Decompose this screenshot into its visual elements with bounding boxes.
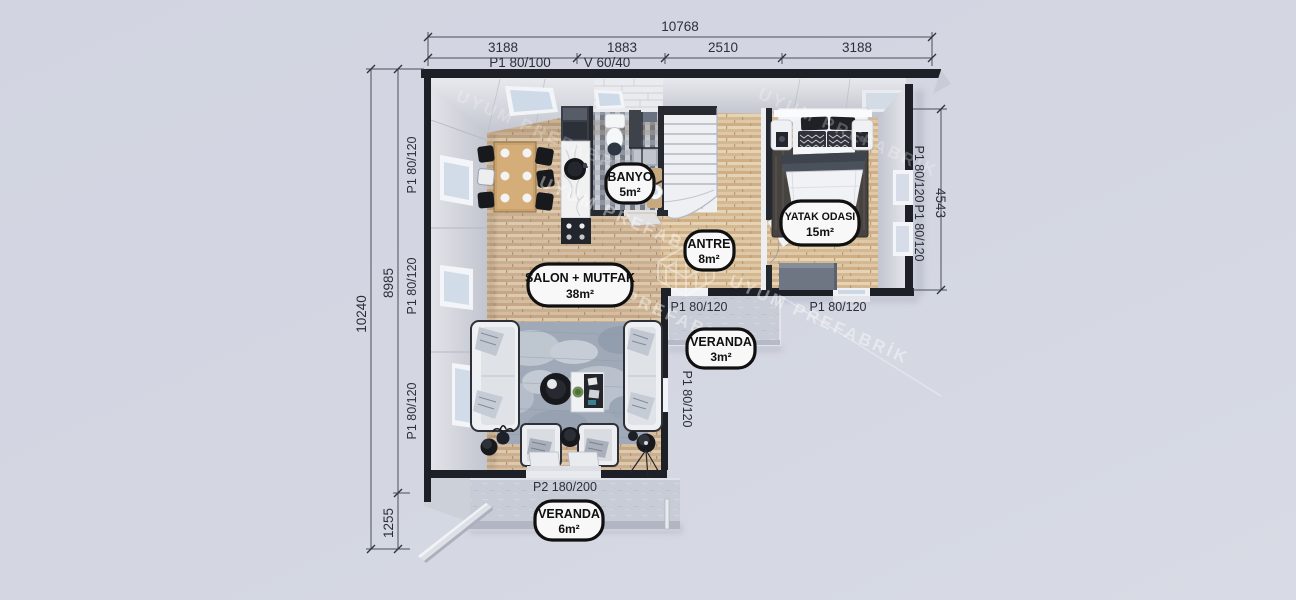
svg-text:V 60/40: V 60/40 [584,55,631,70]
svg-text:4543: 4543 [933,188,948,218]
svg-text:3m²: 3m² [710,350,731,364]
svg-text:P1 80/100: P1 80/100 [489,55,551,70]
svg-text:P1 80/120: P1 80/120 [405,382,419,439]
svg-text:10768: 10768 [661,19,699,34]
svg-text:5m²: 5m² [619,185,640,199]
svg-text:1883: 1883 [607,40,637,55]
svg-text:VERANDA: VERANDA [690,335,752,349]
svg-text:SALON + MUTFAK: SALON + MUTFAK [525,271,635,285]
svg-text:15m²: 15m² [806,225,834,239]
svg-text:3188: 3188 [488,40,518,55]
svg-text:8985: 8985 [381,268,396,298]
svg-text:2510: 2510 [708,40,738,55]
svg-text:P2 180/200: P2 180/200 [533,480,597,494]
svg-text:ANTRE: ANTRE [687,237,730,251]
svg-text:P1 80/120: P1 80/120 [405,257,419,314]
svg-text:P1 80/120: P1 80/120 [912,146,926,203]
svg-text:P1 80/120: P1 80/120 [912,205,926,262]
svg-text:1255: 1255 [381,508,396,538]
svg-text:YATAK ODASI: YATAK ODASI [785,211,855,223]
svg-text:P1 80/120: P1 80/120 [680,371,694,428]
svg-text:3188: 3188 [842,40,872,55]
svg-text:10240: 10240 [354,295,369,333]
svg-text:P1 80/120: P1 80/120 [810,300,867,314]
svg-text:6m²: 6m² [558,522,579,536]
svg-text:P1 80/120: P1 80/120 [671,300,728,314]
svg-text:P1 80/120: P1 80/120 [405,136,419,193]
svg-text:38m²: 38m² [566,287,594,301]
svg-text:VERANDA: VERANDA [538,507,600,521]
svg-text:BANYO: BANYO [607,170,652,184]
svg-text:8m²: 8m² [698,252,719,266]
